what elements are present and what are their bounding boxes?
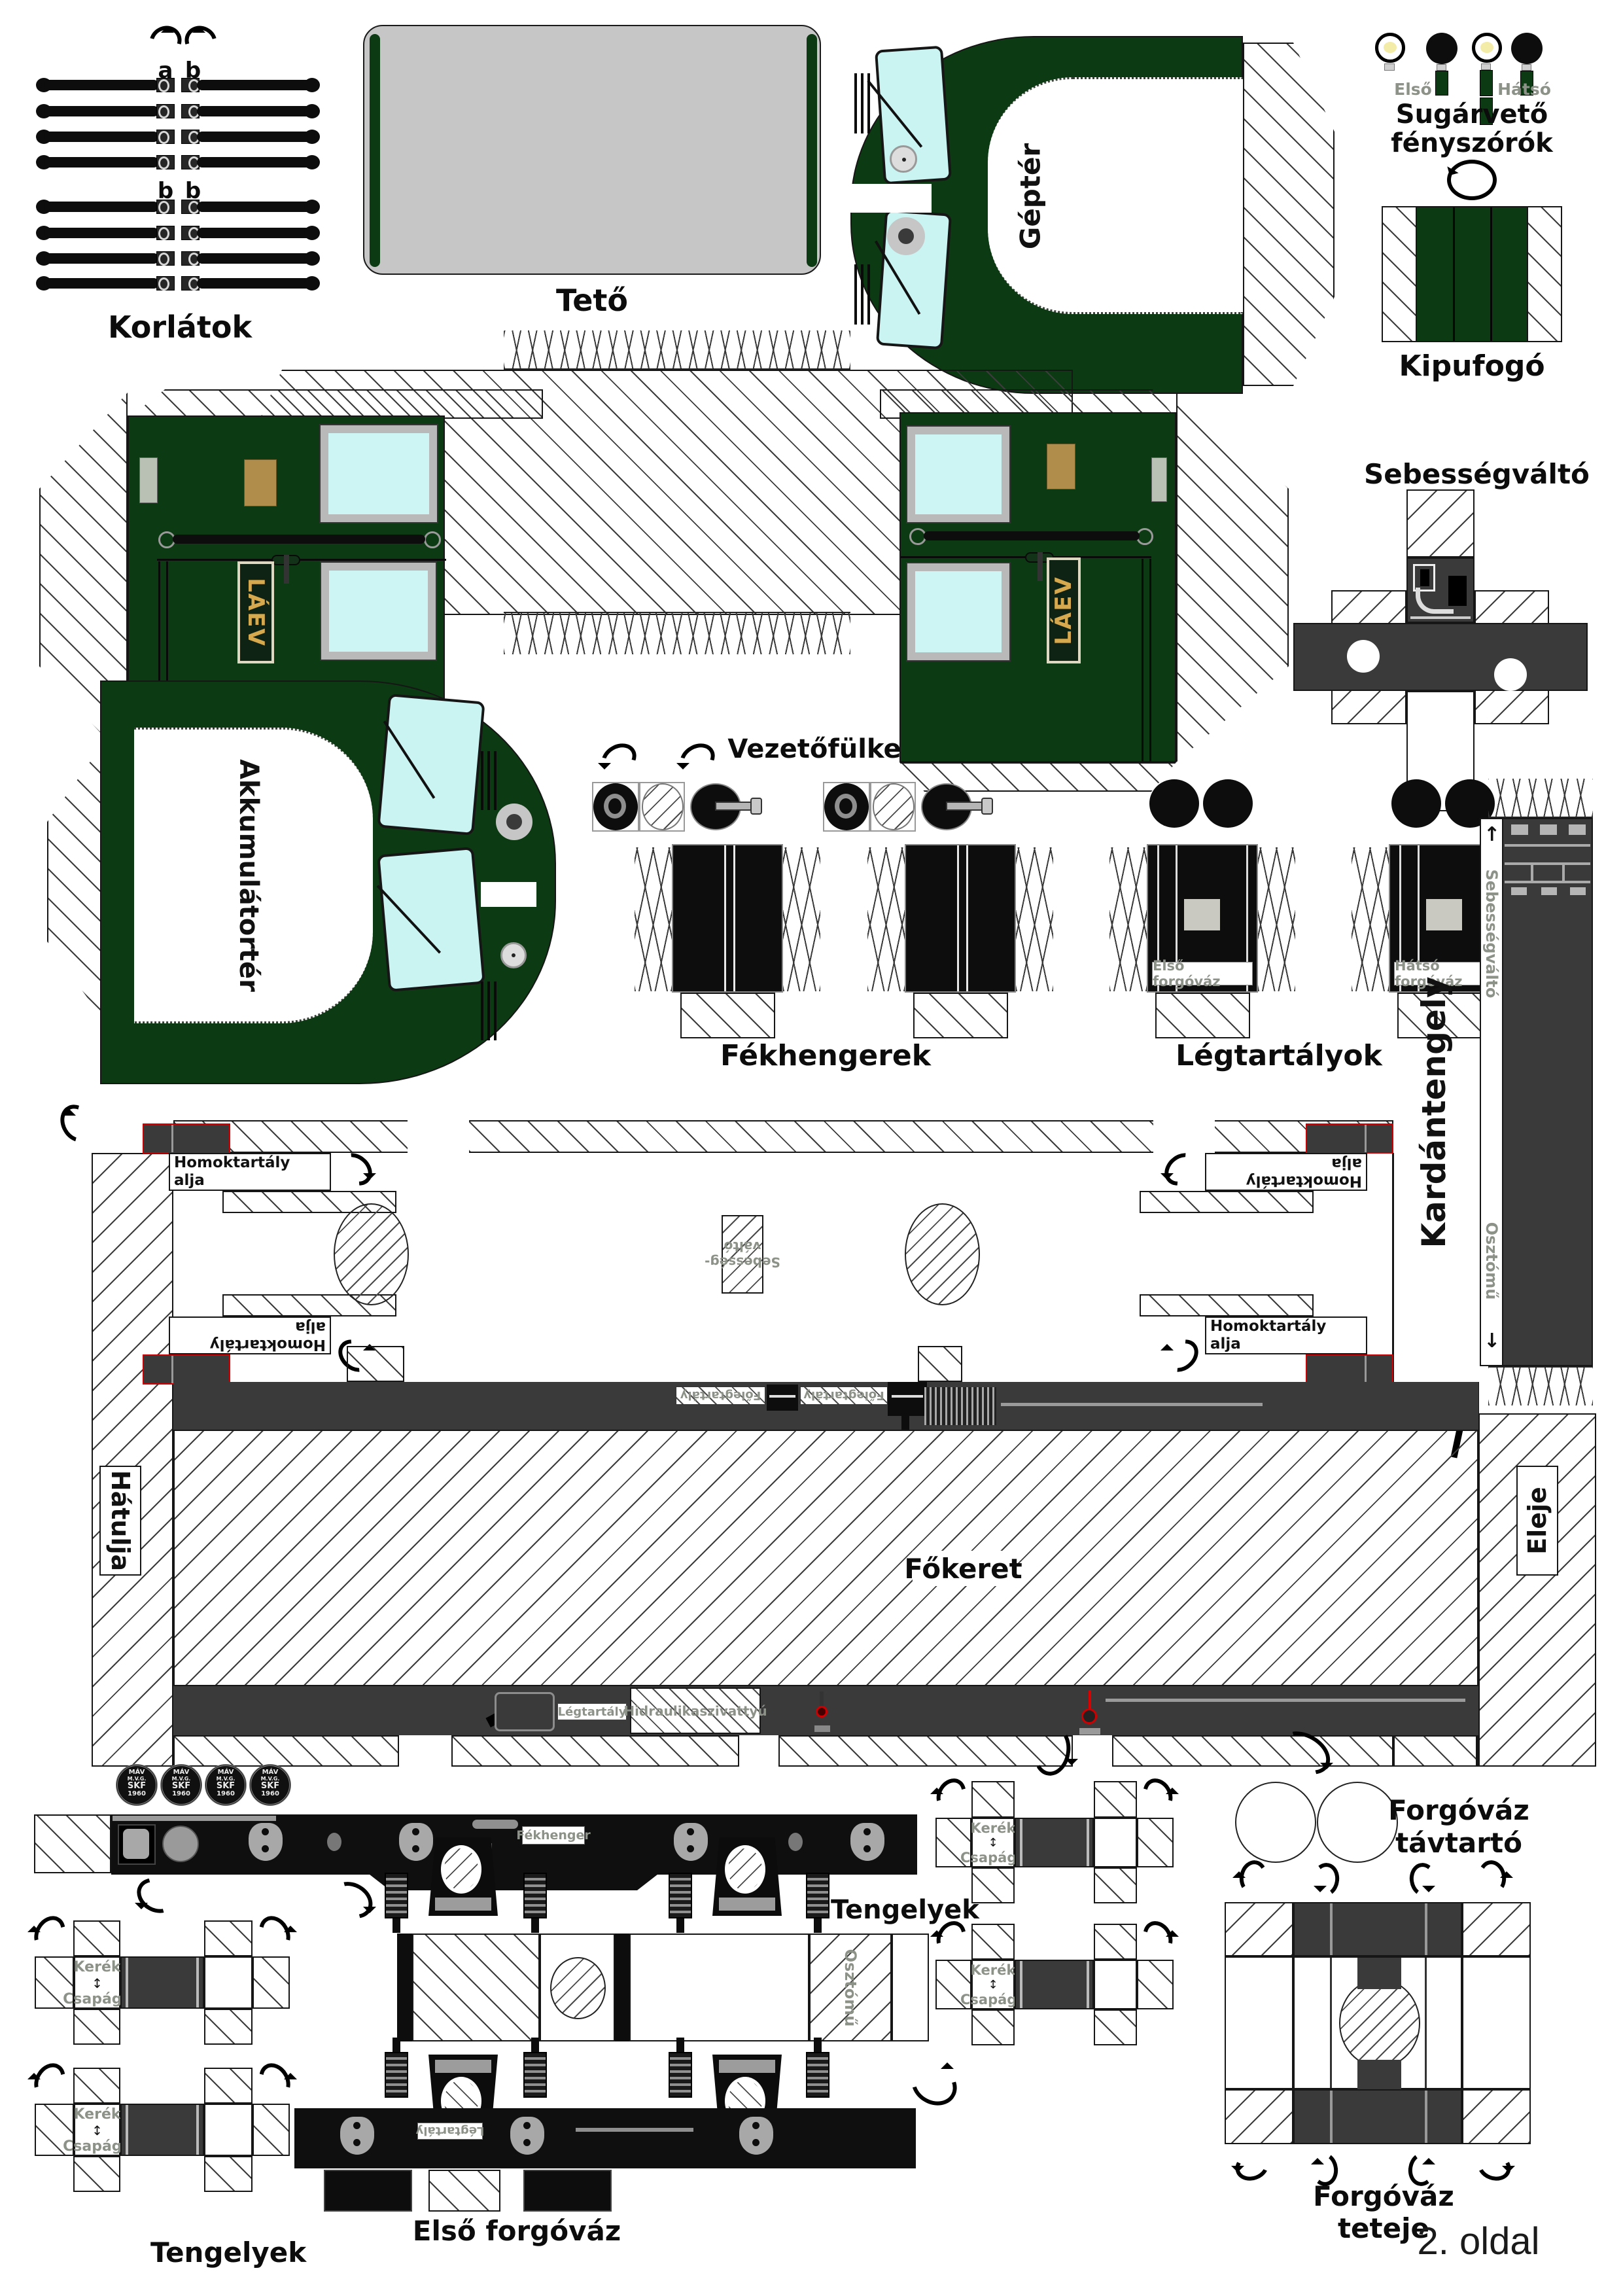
glue-flap (1137, 1960, 1174, 2009)
spring-icon (806, 2052, 829, 2098)
detail (196, 1958, 199, 2007)
detail (864, 1845, 871, 1852)
detail (550, 1957, 606, 2019)
sand-label-2: alja (170, 1318, 330, 1335)
headlamp-lit-icon (1375, 33, 1405, 63)
detail (1422, 2151, 1435, 2164)
detail (171, 1356, 173, 1383)
kardan-osztomu-label: Osztómű (1482, 1222, 1501, 1300)
detail (197, 202, 312, 212)
detail (676, 1918, 684, 1933)
spring-icon (523, 1873, 547, 1918)
emblem-icon (890, 145, 917, 173)
axle-cell: Kerék↕Csapágy (74, 1956, 120, 2009)
bearing-cap-line1: MÁV (251, 1769, 289, 1776)
bogie-top-band (1293, 2089, 1462, 2144)
railing-row (36, 103, 320, 119)
fold-arrow-icon (1163, 1341, 1200, 1370)
glue-flap (971, 1781, 1015, 1818)
glue-flap (1094, 2009, 1137, 2045)
detail (28, 2058, 71, 2104)
sand-label-2: alja (1206, 1154, 1366, 1172)
bearing-cap-line4: 1960 (207, 1790, 245, 1797)
detail (1569, 824, 1586, 835)
sand-label-box: Homoktartályalja (169, 1316, 331, 1354)
glue-flap (47, 746, 101, 1017)
page-number: 2. oldal (1370, 2219, 1586, 2263)
detail (1166, 1924, 1179, 1937)
door-window (321, 425, 437, 522)
axle-cell (204, 1956, 253, 2009)
railing-row (36, 251, 320, 266)
detail (304, 251, 320, 266)
glue-flap (73, 2009, 120, 2045)
glue-teeth (504, 612, 850, 654)
axle-cell (1094, 1818, 1137, 1867)
bearing-cap: MÁVM.V.G.SKF1960 (205, 1764, 247, 1806)
detail (1522, 64, 1531, 71)
brake-cylinder-parts (823, 782, 994, 834)
gepter-label-wrap: Géptér (1001, 111, 1060, 281)
detail (135, 1903, 148, 1916)
detail (540, 1934, 615, 2041)
tank-end-icon (1149, 779, 1199, 828)
detail (44, 202, 159, 212)
detail (1232, 1865, 1246, 1878)
detail (156, 200, 175, 214)
detail (63, 1103, 76, 1116)
detail (1330, 1958, 1332, 2088)
glue-flap (1112, 1735, 1393, 1767)
axle-center (120, 2104, 204, 2156)
glue-flap (1382, 206, 1417, 342)
headlights-title-2: fényszórók (1387, 128, 1557, 158)
detail (814, 1725, 830, 1732)
air-tank-box: Légtartály (557, 1703, 627, 1720)
wiper-icon (377, 885, 441, 953)
gepter-label: Géptér (1015, 143, 1047, 249)
detail (1161, 1337, 1174, 1351)
arrow-updown-icon: ↕ (988, 1836, 998, 1850)
detail (1314, 1886, 1327, 1899)
glue-flap (34, 1814, 111, 1873)
kipufogo-title: Kipufogó (1390, 349, 1554, 383)
sand-tab (143, 1123, 230, 1154)
spring-icon (385, 1873, 408, 1918)
fold-arrow-icon (31, 2066, 68, 2095)
glue-flap (73, 2068, 120, 2104)
detail (393, 2038, 400, 2052)
detail (123, 1829, 149, 1859)
detail (158, 156, 169, 169)
fold-arrow-icon (256, 1919, 293, 1948)
detail (1425, 1958, 1427, 2088)
brake-cylinder-parts (592, 782, 763, 834)
axlebox-guide-icon (510, 2117, 544, 2155)
glue-flap (253, 1956, 290, 2009)
detail (1330, 2091, 1333, 2143)
wheel-label: Kerék (74, 2106, 121, 2123)
detail (157, 559, 446, 561)
glue-flap (1094, 1867, 1137, 1903)
kardan-title-wrap: Kardántengely (1406, 968, 1461, 1256)
fold-arrow-icon (1307, 2155, 1341, 2183)
spring-icon (385, 2052, 408, 2098)
fold-arrow-icon (1308, 1866, 1342, 1894)
railing-row (36, 154, 320, 170)
detail (1357, 1958, 1401, 1989)
detail (904, 2056, 964, 2113)
detail (304, 155, 320, 169)
detail (902, 158, 906, 162)
tank-label: Első forgóváz (1153, 958, 1252, 989)
bearing-cap-line3: SKF (162, 1782, 200, 1790)
handrail (924, 531, 1140, 540)
detail (1161, 1173, 1174, 1186)
detail (253, 2058, 296, 2104)
glue-flap (412, 1934, 540, 2041)
sand-tab (1306, 1354, 1393, 1385)
detail (1425, 1903, 1427, 1955)
glue-flap (73, 1920, 120, 1956)
fold-arrow-icon (330, 1883, 374, 1917)
roll-arrow-icon (1447, 160, 1497, 200)
glue-flap (1462, 1902, 1531, 1956)
sand-label-1: Homoktartály (1206, 1318, 1366, 1335)
arrow-down-icon: ↓ (1484, 1330, 1500, 1352)
detail (892, 1934, 929, 2041)
glue-teeth (1016, 847, 1053, 991)
detail (1570, 887, 1586, 895)
detail (126, 1958, 128, 2007)
papercraft-sheet: a b b b Korlátok Tető Géptér Első Hátsó … (0, 0, 1623, 2296)
laev-plate-label: LÁEV (1051, 576, 1077, 645)
detail (27, 2066, 41, 2079)
grille-icon (854, 73, 870, 133)
railing-row (36, 225, 320, 241)
detail (523, 2122, 531, 2129)
axlebox-guide-icon (249, 1823, 283, 1861)
detail (441, 1845, 481, 1894)
detail (1347, 640, 1380, 673)
kardan-strip-label-wrap: Osztómű (1481, 1205, 1502, 1316)
fold-arrow-icon (1141, 1924, 1175, 1951)
detail (719, 2060, 775, 2073)
sand-label-box: Homoktartályalja (1205, 1153, 1367, 1191)
detail (1365, 1125, 1367, 1152)
detail (28, 1911, 71, 1956)
glue-flap (428, 2170, 500, 2212)
headlight-icon (496, 804, 532, 840)
detail (1320, 1763, 1333, 1776)
detail (1531, 862, 1533, 883)
axlebox-guide-icon (674, 1823, 708, 1861)
detail (1138, 1773, 1178, 1816)
detail (478, 1841, 608, 1875)
detail (262, 1828, 269, 1835)
detail (1422, 1886, 1435, 1899)
fold-arrow-icon (915, 2061, 954, 2108)
teto-title: Tető (543, 283, 641, 318)
detail (1562, 862, 1565, 883)
detail (816, 1706, 828, 1718)
rear-lamp-label: Hátsó (1495, 80, 1554, 99)
detail (495, 1692, 555, 1731)
axle-center (120, 1956, 204, 2009)
detail (1020, 1819, 1022, 1866)
osztomu-strip: Osztómű (809, 1934, 892, 2041)
detail (981, 798, 993, 815)
sand-label-1: Homoktartály (170, 1335, 330, 1353)
detail (1231, 2166, 1244, 2179)
tank-plate-icon (1184, 899, 1220, 930)
detail (676, 763, 689, 776)
detail (957, 845, 959, 991)
detail (262, 1845, 269, 1852)
glue-flap (680, 993, 775, 1038)
detail (687, 1828, 694, 1835)
grille-icon (481, 981, 497, 1040)
detail (171, 1125, 173, 1152)
builder-plate-icon (139, 457, 158, 503)
detail (44, 253, 159, 264)
elso-forgovaz-title: Első forgóváz (393, 2215, 641, 2247)
fold-arrow-icon (58, 1108, 97, 1139)
axle-cell (204, 2104, 253, 2156)
detail (118, 1824, 156, 1865)
spring-icon (669, 1873, 692, 1918)
wiper-icon (383, 720, 436, 799)
detail (156, 130, 175, 144)
detail (304, 226, 320, 240)
tank-plate-icon (1426, 899, 1462, 930)
eleje-box: Eleje (1516, 1466, 1558, 1576)
fold-arrow-icon (601, 745, 637, 773)
axlebox-guide-icon (340, 2117, 374, 2155)
glue-teeth (1352, 847, 1389, 991)
detail (196, 2105, 199, 2155)
detail (966, 845, 968, 991)
bearing-cap-line4: 1960 (251, 1790, 289, 1797)
detail (629, 1934, 809, 2041)
fold-arrow-icon (136, 1879, 177, 1912)
bogie-side-frame: Fékhenger 9111-055 (111, 1814, 917, 1875)
detail (1138, 1916, 1178, 1959)
air-tank-label: Légtartály (558, 1705, 627, 1719)
fold-arrow-icon (1163, 1155, 1200, 1184)
sand-label-2: alja (170, 1172, 330, 1190)
detail (44, 228, 159, 238)
tank-label-box: Első forgóváz (1152, 962, 1253, 985)
fold-arrow-icon (1235, 2153, 1269, 2180)
detail (930, 1781, 943, 1794)
detail (1079, 1728, 1100, 1735)
glue-flap (1155, 993, 1250, 1038)
detail (1001, 1403, 1263, 1406)
glue-teeth (504, 330, 850, 370)
axle-cell (1094, 1960, 1137, 2009)
detail (1480, 42, 1493, 53)
axle-cell: Kerék↕Csapágy (971, 1818, 1015, 1867)
detail (44, 80, 159, 90)
korlatok-title: Korlátok (105, 309, 255, 345)
detail (353, 2122, 360, 2129)
glue-flap (1243, 43, 1335, 386)
detail (523, 2170, 612, 2212)
glue-flap (918, 1346, 962, 1382)
axlebox-guide-icon (399, 1823, 433, 1861)
main-tank-label: Főlegtartály (803, 1389, 884, 1403)
detail (158, 131, 169, 144)
detail (1020, 1961, 1022, 2008)
detail (687, 1845, 694, 1852)
detail (892, 1395, 923, 1398)
arrow-updown-icon: ↕ (92, 1975, 103, 1991)
arrow-updown-icon: ↕ (988, 1978, 998, 1992)
detail (370, 34, 380, 267)
glue-flap (913, 993, 1008, 1038)
glue-flap (253, 2104, 290, 2156)
detail (156, 104, 175, 118)
detail (931, 1773, 971, 1816)
detail (304, 78, 320, 92)
detail (1365, 1356, 1367, 1383)
laev-plate-label: LÁEV (243, 578, 269, 647)
detail (1505, 862, 1590, 865)
fold-arrow-icon (256, 2066, 293, 2095)
main-tank-box: Főlegtartály (800, 1386, 888, 1405)
spring-icon (669, 2052, 692, 2098)
detail (835, 794, 857, 819)
tank-end-icon (1391, 779, 1441, 828)
detail (284, 1919, 297, 1932)
bearing-cap-line1: MÁV (162, 1769, 200, 1776)
detail (158, 277, 169, 291)
detail (158, 79, 169, 92)
detail (44, 106, 159, 116)
detail (158, 201, 169, 214)
fold-arrow-icon (149, 26, 182, 56)
detail (1437, 64, 1446, 71)
bearing-cap-line1: MÁV (207, 1769, 245, 1776)
detail (197, 80, 312, 90)
detail (1481, 63, 1491, 70)
pump-box: Hidraulikaszivattyú (630, 1687, 761, 1734)
spacer-disc (1235, 1782, 1316, 1863)
bogie-tank-label: Légtartály (416, 2125, 485, 2138)
frame-rear-strip (92, 1153, 173, 1767)
detail (158, 227, 169, 240)
detail: Sebesség-váltó (705, 1239, 780, 1270)
grille-icon (854, 264, 870, 325)
exhaust-panel (1416, 206, 1528, 342)
hatulja-box: Hátulja (99, 1466, 141, 1576)
detail (435, 1898, 491, 1911)
detail (506, 814, 522, 830)
frame-hole (334, 1203, 409, 1305)
glue-flap (204, 1920, 253, 1956)
detail (44, 278, 159, 289)
detail (946, 802, 986, 811)
detail (44, 132, 159, 142)
gearbox-marker-2: váltó (705, 1239, 780, 1254)
detail (1494, 658, 1527, 691)
white-stripe (481, 882, 536, 907)
front-lamp-label: Első (1387, 80, 1439, 99)
sand-label-box: Homoktartályalja (169, 1153, 331, 1191)
glue-flap (1527, 206, 1562, 342)
fold-arrow-icon (1236, 1863, 1270, 1891)
detail (158, 105, 169, 118)
detail (126, 2105, 128, 2155)
detail (512, 953, 515, 957)
fekhengerek-title: Fékhengerek (705, 1039, 947, 1072)
wheel-label: Kerék (971, 1820, 1016, 1836)
cab-window (377, 847, 485, 992)
detail (1505, 881, 1590, 883)
detail (408, 1119, 469, 1154)
detail (393, 1918, 400, 1933)
detail (327, 1833, 341, 1851)
laev-plate: LÁEV (1047, 557, 1081, 663)
kardan-side-strip: ↑ Sebességváltó Osztómű ↓ (1480, 818, 1503, 1366)
spring-icon (523, 2052, 547, 2098)
sebessegvalto-title: Sebességváltó (1364, 458, 1580, 490)
cab-side-right: LÁEV (899, 412, 1176, 762)
roof-panel (363, 25, 821, 275)
detail (864, 1828, 871, 1835)
headlamp-dark-icon (1426, 33, 1457, 64)
detail (898, 228, 914, 244)
emblem-icon (500, 942, 527, 968)
headlights-title-1: Sugárvető (1387, 99, 1557, 130)
detail (27, 1919, 41, 1932)
glue-flap (971, 2009, 1015, 2045)
detail (901, 1407, 909, 1430)
fokeret-title: Főkeret (913, 1551, 1014, 1586)
detail (1384, 42, 1397, 53)
axlebox-guide-icon (850, 1823, 884, 1861)
tengelyek-title: Tengelyek (150, 2236, 281, 2269)
axle-arch (712, 1837, 782, 1916)
detail (353, 2139, 360, 2146)
sand-label-1: Homoktartály (1206, 1172, 1366, 1190)
door-window (321, 563, 436, 660)
bogie-side-frame: Légtartály (294, 2108, 916, 2168)
detail (1087, 1961, 1089, 2008)
detail (1416, 588, 1454, 614)
kardan-strip-label-wrap: Sebességváltó (1481, 852, 1502, 1016)
detail (162, 1826, 199, 1862)
brass-plate-icon (1047, 444, 1075, 489)
detail (733, 845, 735, 991)
glue-flap (347, 1346, 404, 1382)
headlight-icon (887, 217, 925, 255)
glue-teeth (783, 847, 820, 991)
glue-flap (1225, 2089, 1293, 2144)
axle-cell: Kerék↕Csapágy (971, 1960, 1015, 2009)
detail (1153, 1119, 1215, 1154)
fold-arrow-icon (1477, 2153, 1511, 2180)
kardantengely-title: Kardántengely (1415, 976, 1453, 1248)
white-stripe (850, 184, 932, 213)
detail (156, 155, 175, 169)
detail (284, 555, 289, 584)
detail (156, 78, 175, 92)
sand-tab (1306, 1123, 1393, 1154)
detail (304, 276, 320, 291)
detail (197, 157, 312, 168)
